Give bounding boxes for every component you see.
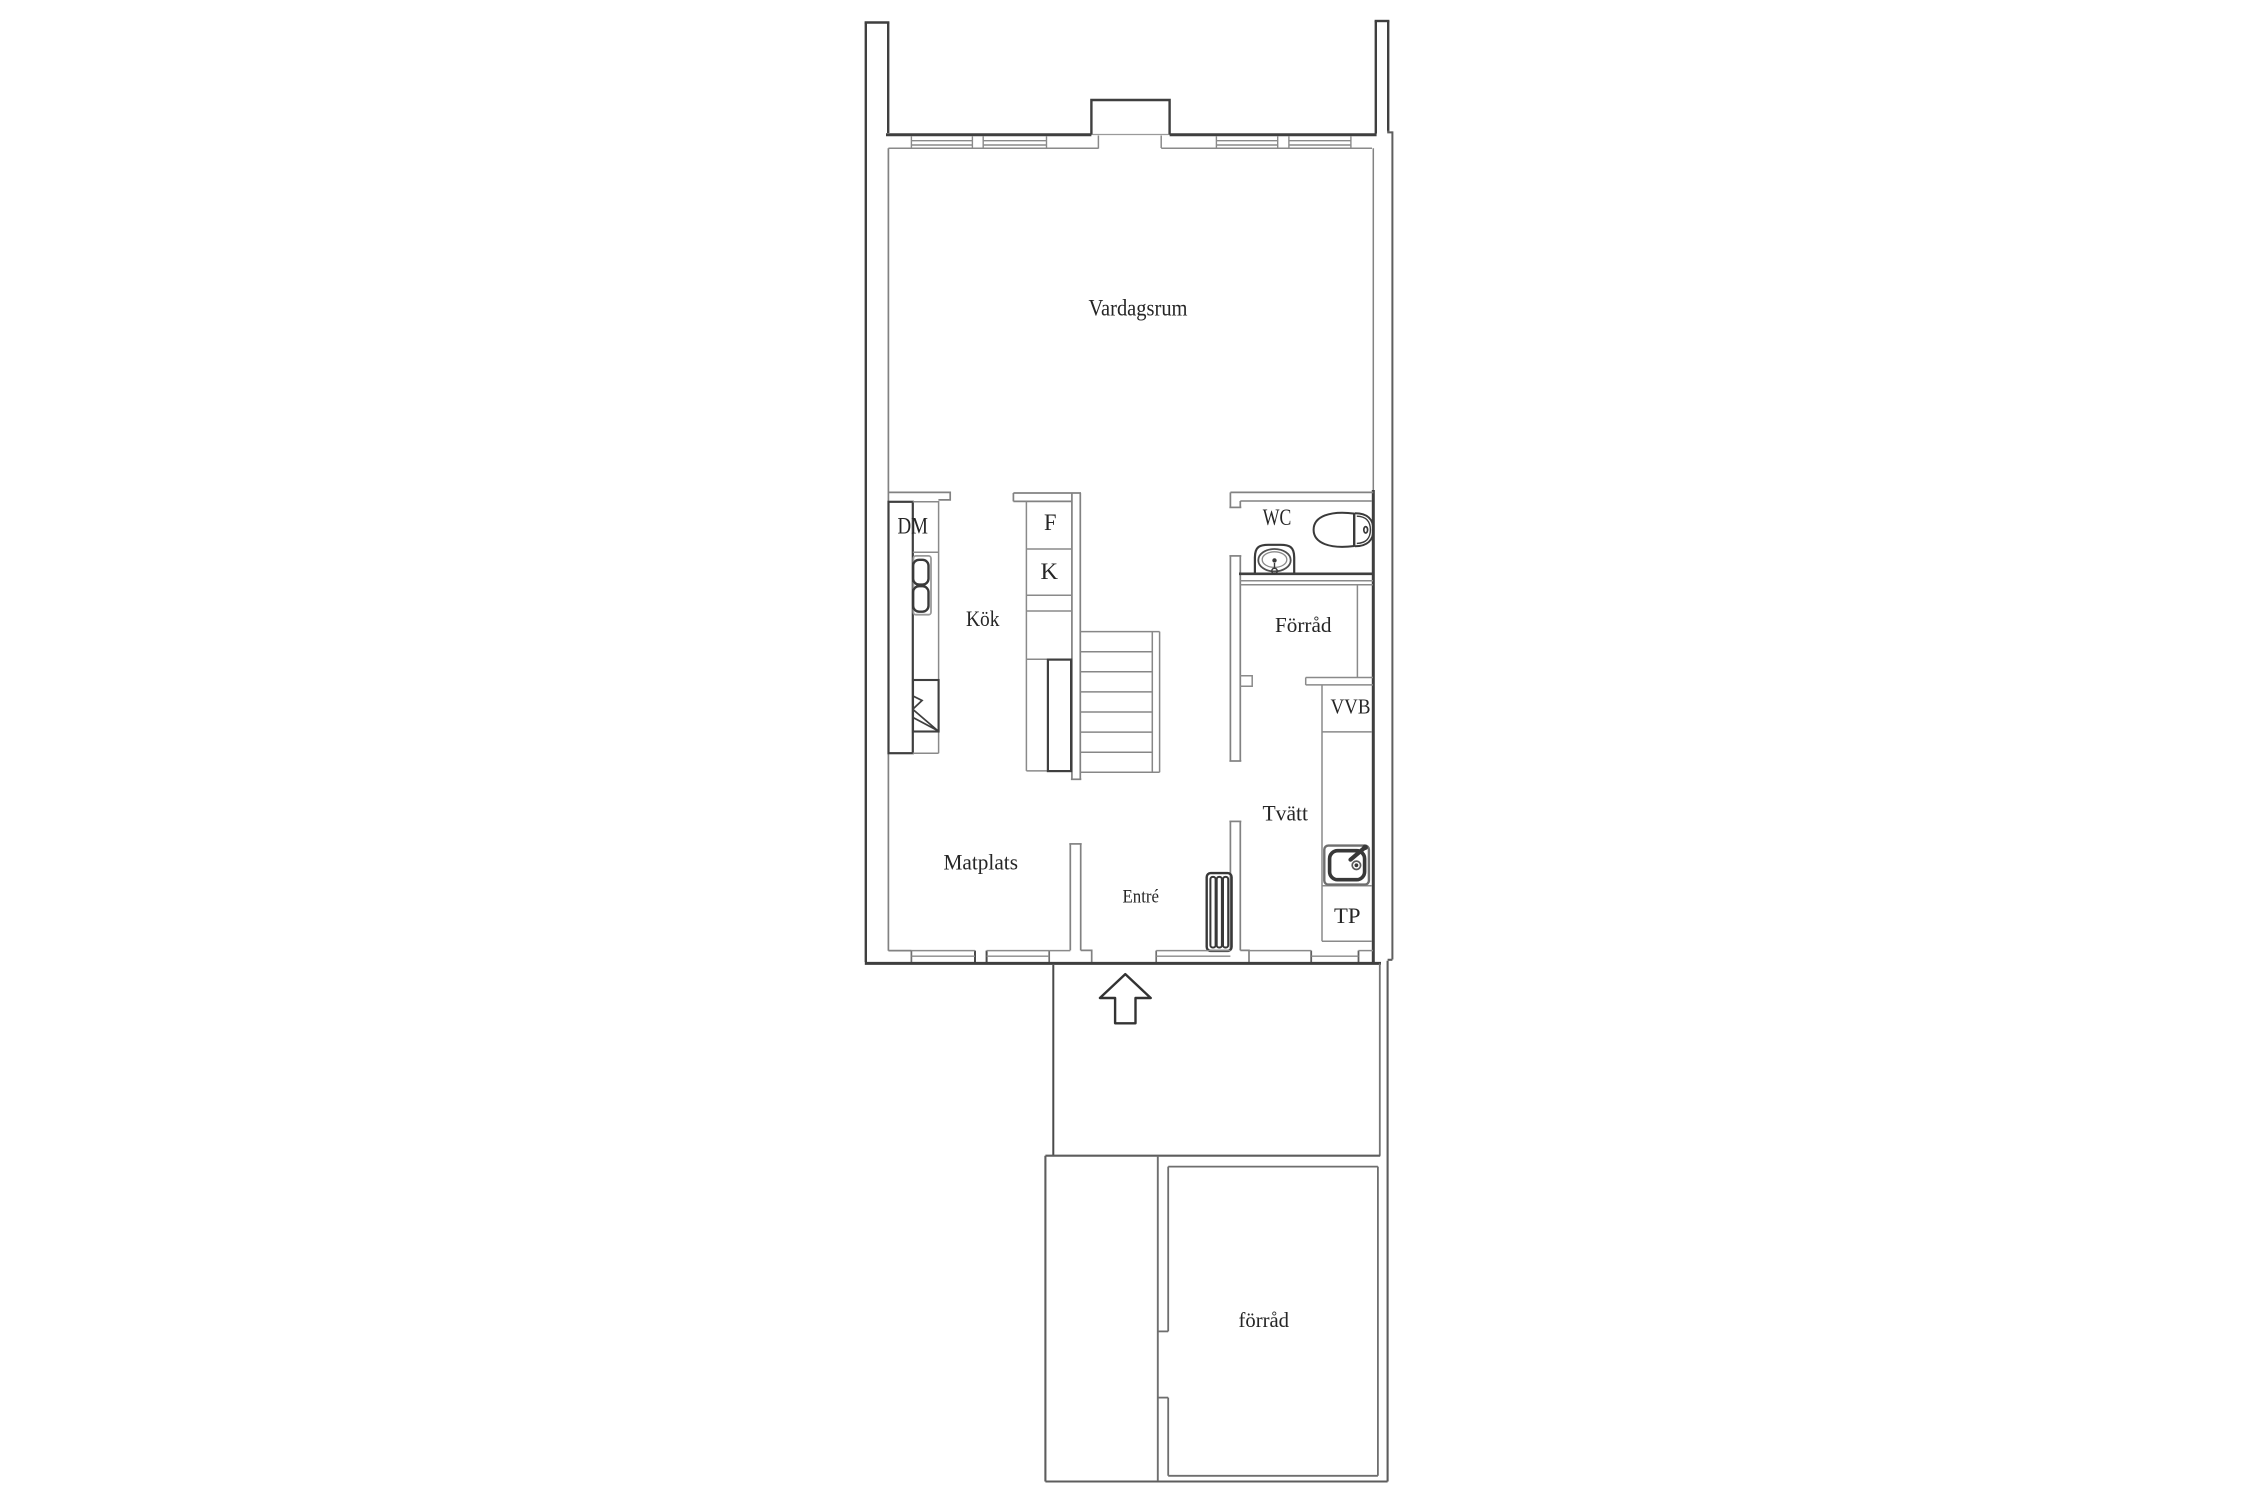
svg-text:Kök: Kök — [966, 606, 1000, 631]
svg-text:K: K — [1041, 559, 1059, 585]
svg-text:Matplats: Matplats — [944, 850, 1019, 875]
svg-text:VVB: VVB — [1331, 695, 1371, 719]
svg-text:Vardagsrum: Vardagsrum — [1089, 296, 1188, 321]
svg-text:Tvätt: Tvätt — [1263, 801, 1309, 826]
svg-text:TP: TP — [1334, 903, 1361, 928]
svg-text:DM: DM — [898, 514, 929, 539]
svg-text:förråd: förråd — [1239, 1308, 1290, 1332]
svg-text:Entré: Entré — [1123, 887, 1160, 908]
svg-text:Förråd: Förråd — [1275, 613, 1332, 637]
svg-text:WC: WC — [1263, 505, 1292, 531]
svg-text:F: F — [1044, 510, 1057, 536]
